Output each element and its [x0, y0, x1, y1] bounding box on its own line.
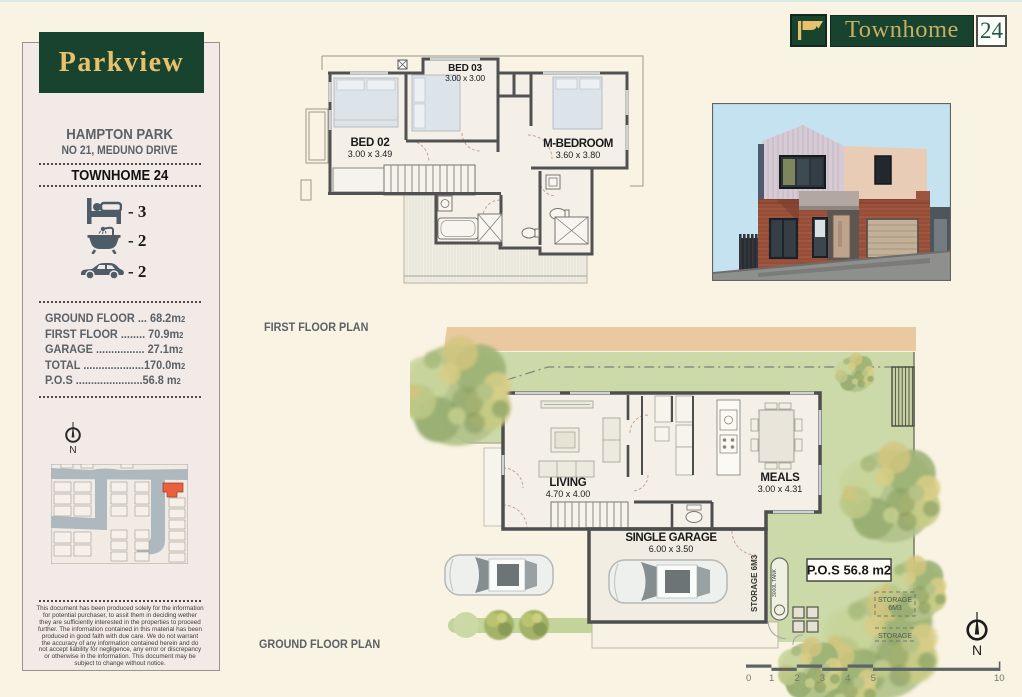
svg-text:STORAGE 6M3: STORAGE 6M3 — [750, 554, 759, 612]
svg-text:4: 4 — [845, 673, 850, 684]
svg-text:10: 10 — [994, 673, 1005, 684]
svg-text:BED 02: BED 02 — [350, 137, 389, 149]
svg-text:6M3: 6M3 — [888, 605, 902, 612]
svg-text:4.70 x 4.00: 4.70 x 4.00 — [546, 489, 591, 499]
svg-text:LIVING: LIVING — [549, 477, 586, 489]
svg-text:M-BEDROOM: M-BEDROOM — [543, 138, 613, 150]
svg-text:3.00 x 3.00: 3.00 x 3.00 — [445, 73, 485, 83]
svg-text:3.60 x 3.80: 3.60 x 3.80 — [556, 150, 601, 160]
svg-text:5: 5 — [871, 673, 876, 684]
svg-text:6.00 x 3.50: 6.00 x 3.50 — [649, 544, 694, 554]
svg-text:MEALS: MEALS — [760, 472, 800, 484]
svg-text:N: N — [972, 642, 982, 658]
svg-text:P.O.S 56.8 m2: P.O.S 56.8 m2 — [807, 563, 891, 578]
svg-text:2: 2 — [794, 673, 799, 684]
svg-text:N: N — [69, 445, 76, 456]
svg-text:3: 3 — [820, 673, 825, 684]
svg-text:STORAGE: STORAGE — [878, 597, 912, 604]
svg-text:3000L TANK: 3000L TANK — [772, 568, 778, 597]
svg-text:3.00 x 4.31: 3.00 x 4.31 — [758, 484, 803, 494]
svg-text:1: 1 — [769, 673, 774, 684]
svg-text:STORAGE: STORAGE — [878, 633, 912, 640]
svg-text:3.00 x 3.49: 3.00 x 3.49 — [348, 149, 393, 159]
svg-text:0: 0 — [746, 673, 751, 684]
svg-text:SINGLE GARAGE: SINGLE GARAGE — [625, 532, 717, 544]
